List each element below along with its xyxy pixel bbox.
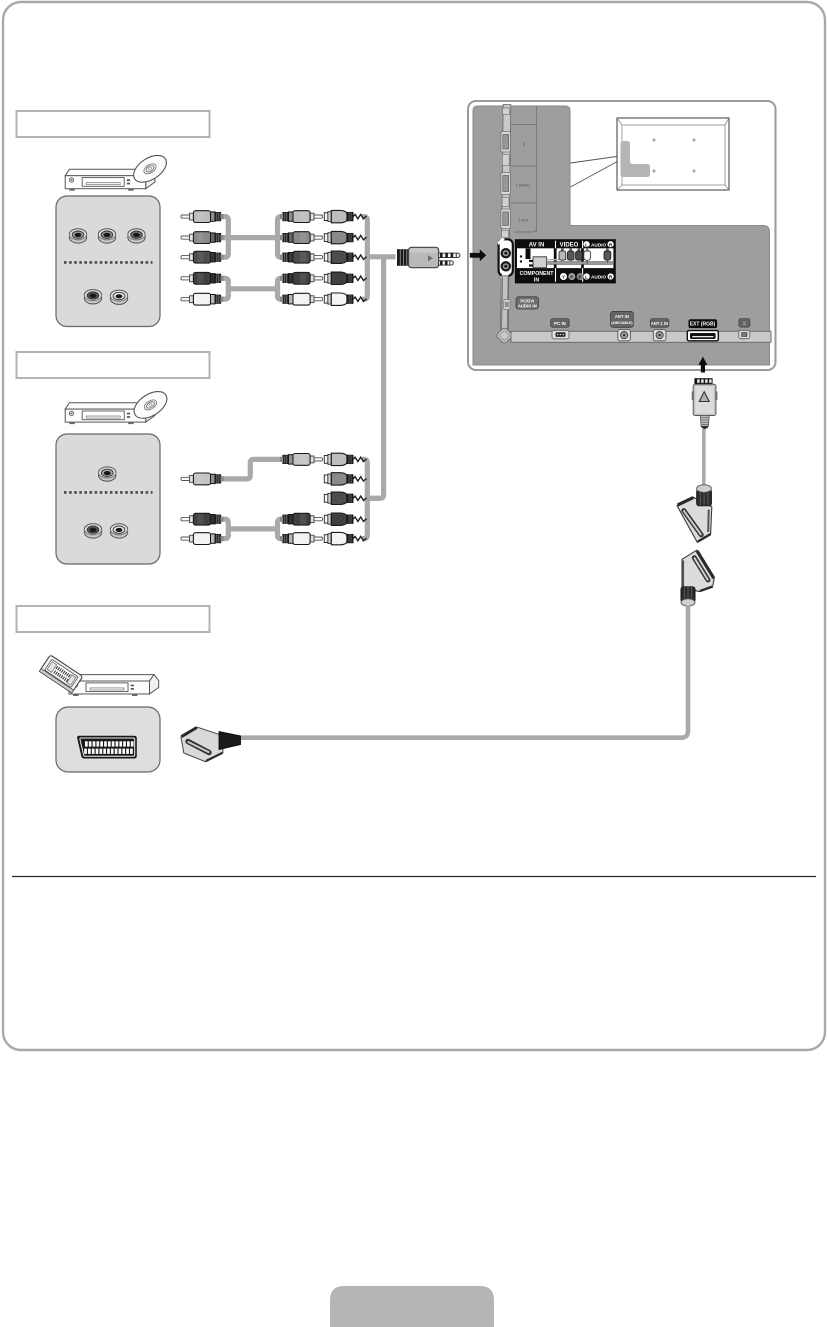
svg-text:COMPONENT: COMPONENT — [520, 271, 555, 277]
svg-text:1 (MHL): 1 (MHL) — [516, 183, 531, 188]
svg-text:P: P — [570, 275, 573, 280]
svg-text:L: L — [585, 275, 588, 281]
svg-text:L: L — [585, 242, 588, 248]
svg-text:PC/DVI: PC/DVI — [520, 298, 534, 303]
svg-text:VIDEO: VIDEO — [560, 243, 579, 249]
svg-text:EXT (RGB): EXT (RGB) — [690, 322, 716, 328]
svg-text:AUDIO IN: AUDIO IN — [518, 304, 537, 309]
svg-text:AUDIO: AUDIO — [591, 242, 606, 247]
svg-text:AUDIO: AUDIO — [591, 275, 606, 280]
svg-text:ANT 1 IN: ANT 1 IN — [651, 321, 668, 326]
svg-text:R: R — [609, 275, 613, 281]
svg-text:1 DVI: 1 DVI — [518, 218, 528, 223]
svg-text:PC IN: PC IN — [554, 321, 566, 326]
svg-text:P: P — [579, 275, 582, 280]
svg-text:Y: Y — [562, 275, 565, 280]
svg-text:R: R — [609, 242, 613, 248]
svg-text:ANT IN: ANT IN — [615, 314, 629, 319]
svg-text:AV IN: AV IN — [529, 243, 545, 249]
svg-text:=: = — [743, 321, 746, 326]
svg-text:(AIR/CABLE): (AIR/CABLE) — [611, 321, 632, 325]
